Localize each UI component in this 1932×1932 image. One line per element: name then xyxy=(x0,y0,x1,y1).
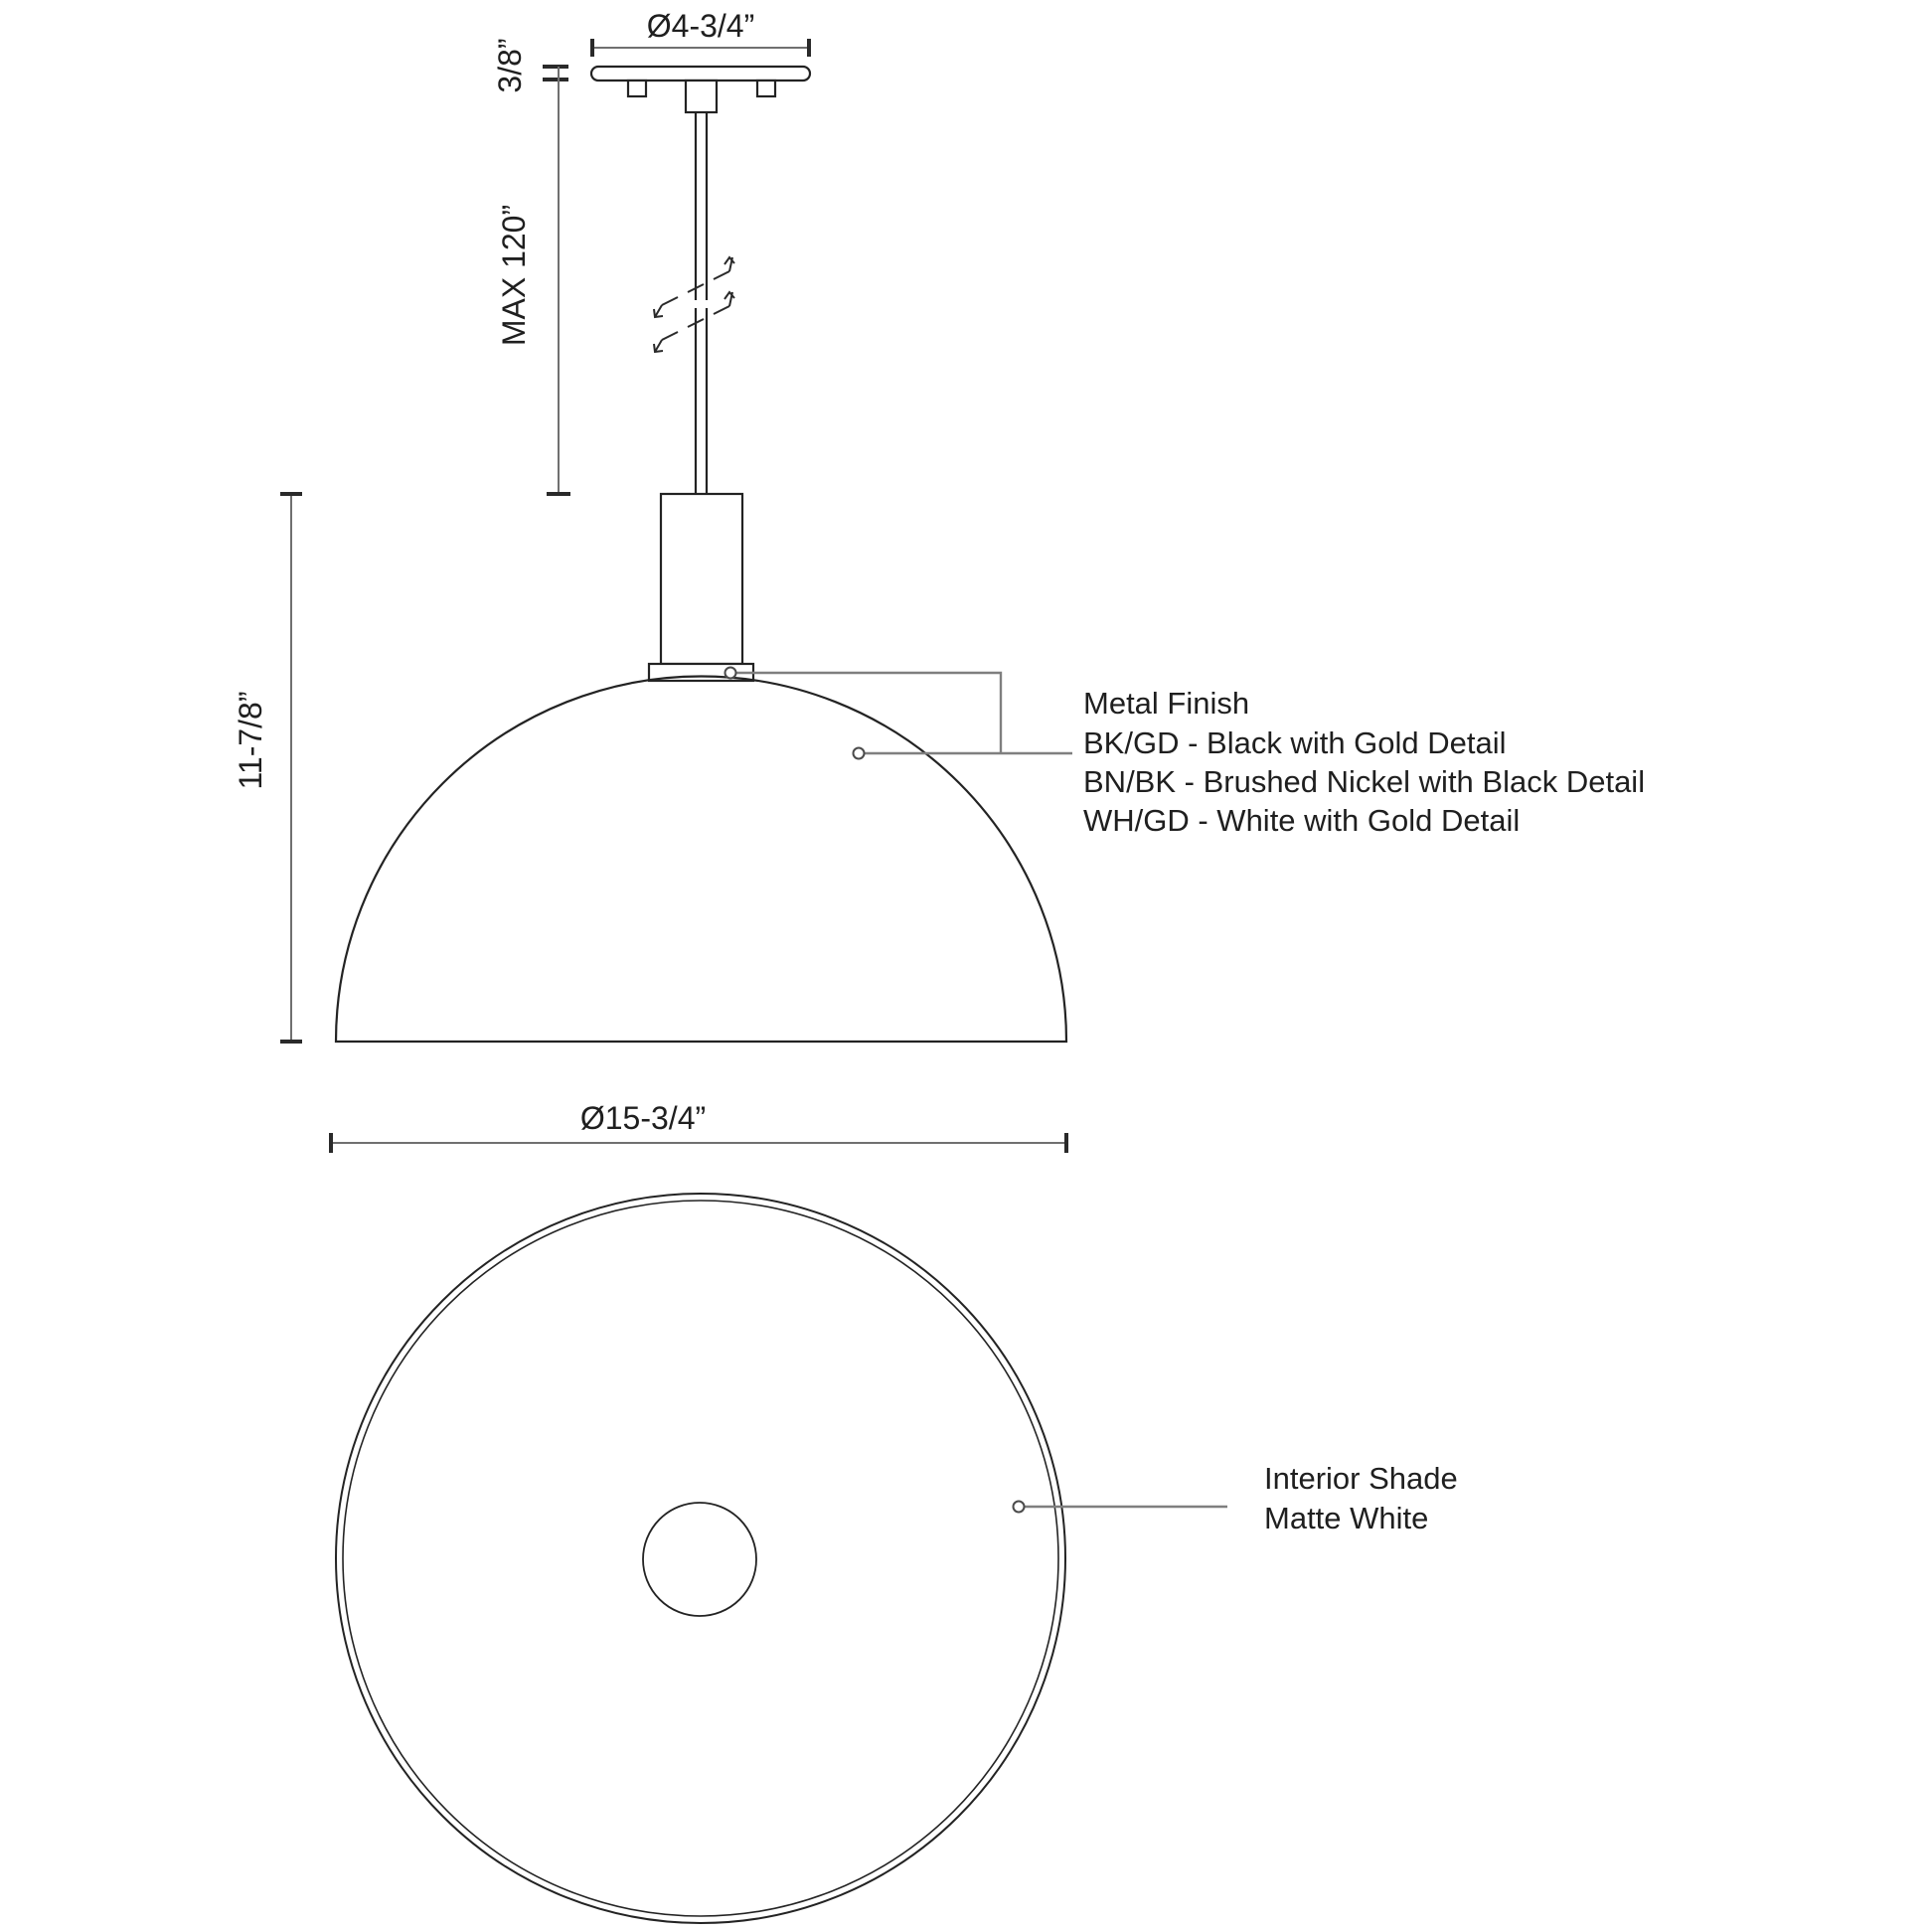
hanging-rod-upper xyxy=(696,112,707,300)
canopy-diameter-label: Ø4-3/4” xyxy=(647,8,754,44)
metal-finish-option-whgd: WH/GD - White with Gold Detail xyxy=(1083,803,1520,838)
ceiling-canopy-plate xyxy=(591,67,810,80)
socket-cylinder xyxy=(661,494,742,664)
metal-finish-title: Metal Finish xyxy=(1083,686,1249,721)
canopy-stem-connector xyxy=(686,80,717,112)
metal-finish-annotation: Metal Finish BK/GD - Black with Gold Det… xyxy=(1083,686,1645,838)
canopy-screw-tab-left xyxy=(628,80,646,96)
drawing-page: Ø4-3/4” 3/8” MAX 120” 11-7/8” xyxy=(0,0,1932,1932)
metal-finish-leader-line xyxy=(736,673,1073,753)
interior-shade-annotation: Interior Shade Matte White xyxy=(1264,1461,1458,1535)
interior-shade-line1: Interior Shade xyxy=(1264,1461,1458,1496)
max-drop-label: MAX 120” xyxy=(496,205,532,346)
technical-drawing: Ø4-3/4” 3/8” MAX 120” 11-7/8” xyxy=(0,0,1932,1932)
rod-break-symbol xyxy=(654,257,734,352)
shade-outline-inner xyxy=(343,1201,1058,1916)
dome-shade xyxy=(336,677,1066,1042)
collar-leader-dot xyxy=(725,668,736,679)
side-view: Ø4-3/4” 3/8” MAX 120” 11-7/8” xyxy=(233,8,1645,1153)
shade-diameter-label: Ø15-3/4” xyxy=(580,1100,706,1136)
canopy-screw-tab-right xyxy=(757,80,775,96)
hanging-rod-lower xyxy=(696,308,707,494)
shade-outline-outer xyxy=(336,1194,1065,1923)
metal-finish-option-bnbk: BN/BK - Brushed Nickel with Black Detail xyxy=(1083,764,1645,799)
metal-finish-option-bkgd: BK/GD - Black with Gold Detail xyxy=(1083,725,1507,760)
socket-hole xyxy=(643,1503,756,1616)
fixture-height-label: 11-7/8” xyxy=(233,691,268,789)
interior-shade-leader-dot xyxy=(1014,1502,1025,1513)
interior-shade-line2: Matte White xyxy=(1264,1501,1428,1535)
canopy-thickness-label: 3/8” xyxy=(492,38,528,92)
bottom-view: Interior Shade Matte White xyxy=(336,1194,1458,1923)
dome-leader-dot xyxy=(854,748,865,759)
canopy-thickness-ticks xyxy=(543,67,568,80)
